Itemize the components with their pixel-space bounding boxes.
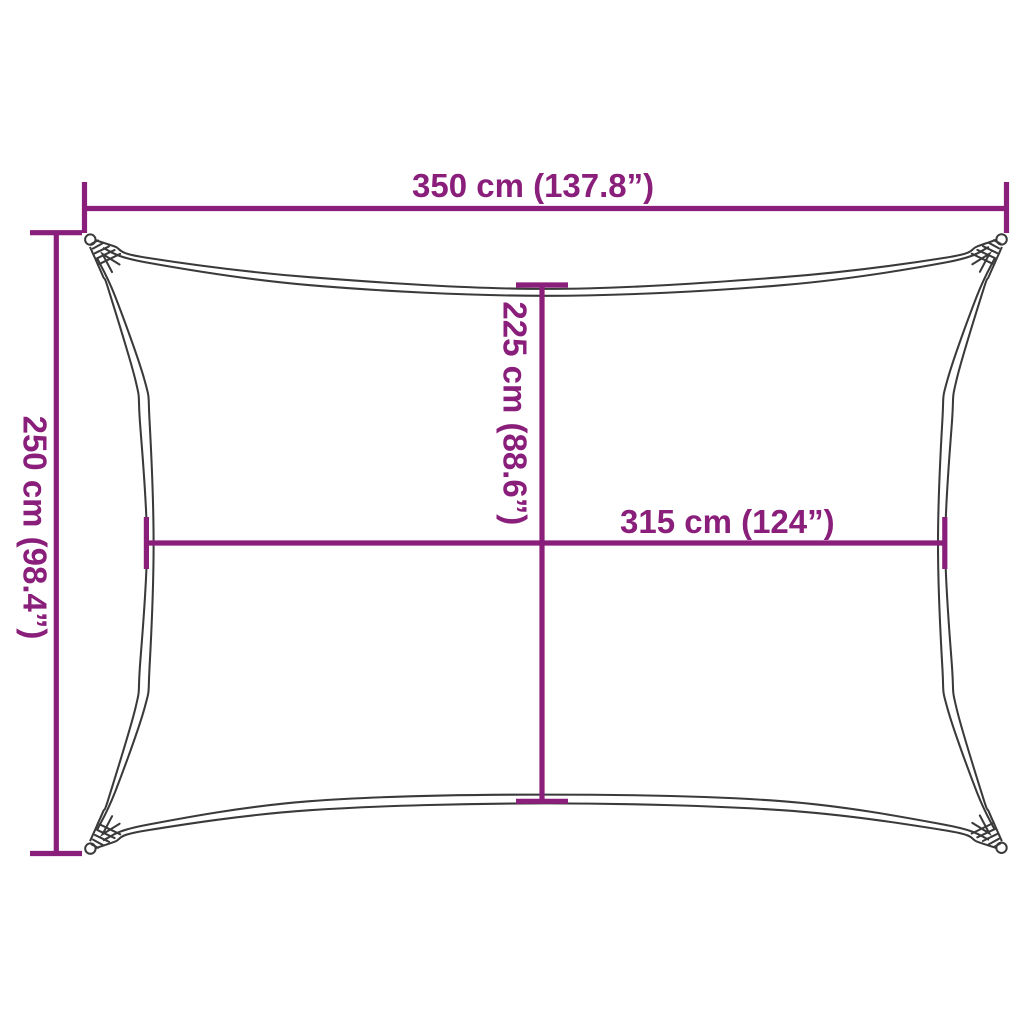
svg-text:250 cm (98.4”): 250 cm (98.4”) — [17, 416, 54, 640]
svg-text:225 cm (88.6”): 225 cm (88.6”) — [497, 301, 534, 525]
svg-text:315 cm (124”): 315 cm (124”) — [620, 503, 835, 540]
svg-text:350 cm (137.8”): 350 cm (137.8”) — [412, 167, 654, 204]
